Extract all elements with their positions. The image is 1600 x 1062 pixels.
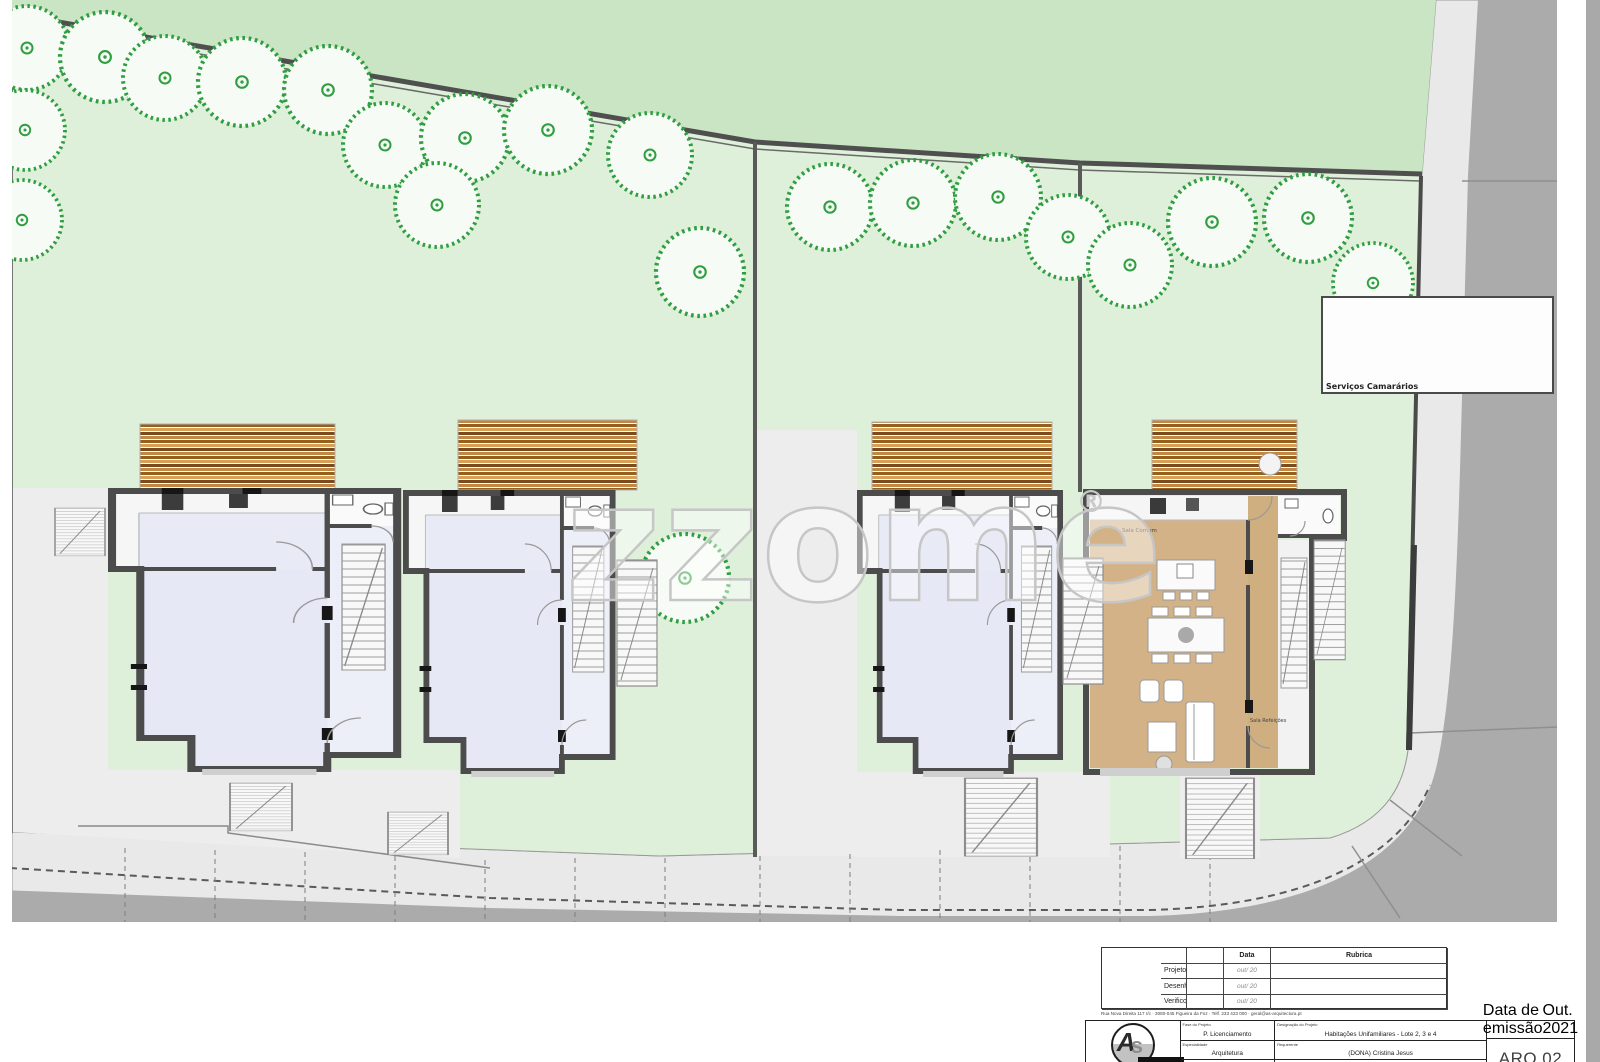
tree-icon bbox=[656, 228, 744, 316]
watermark-text: zzome bbox=[565, 447, 1164, 639]
row-verificou-label: Verificou: bbox=[1161, 995, 1187, 1011]
especialidade-value: Arquitetura bbox=[1212, 1050, 1243, 1059]
tree-icon bbox=[608, 113, 692, 197]
sheet-number-column: Data de emissão Out. 2021 ARQ.02 bbox=[1487, 1021, 1574, 1062]
logo-bar bbox=[1138, 1057, 1184, 1062]
col-data-header: Data bbox=[1224, 948, 1271, 964]
tree-icon bbox=[787, 164, 873, 250]
tree-icon bbox=[395, 163, 479, 247]
titleblock-main: A s Fase do Projeto P. Licenciamento Esp… bbox=[1085, 1020, 1575, 1062]
tree-icon bbox=[123, 36, 207, 120]
project-description-column: Designação do Projeto Habitações Unifami… bbox=[1275, 1021, 1487, 1062]
right-margin bbox=[1557, 0, 1586, 1062]
row-desenhou-label: Desenhou: bbox=[1161, 979, 1187, 995]
row-desenhou-date: out/ 20 bbox=[1224, 979, 1271, 995]
col-rubrica-header: Rubrica bbox=[1271, 948, 1448, 964]
deck-jacuzzi bbox=[1259, 453, 1281, 475]
watermark-registered-icon: ® bbox=[1076, 485, 1106, 520]
office-address-line: Rua Nova Direita 117 r/c · 3080-045 Figu… bbox=[1101, 1011, 1521, 1016]
row-projetou-label: Projetou: bbox=[1161, 964, 1187, 980]
row-projetou-date: out/ 20 bbox=[1224, 964, 1271, 980]
tree-icon bbox=[198, 38, 286, 126]
watermark: zzome ® bbox=[565, 447, 1164, 639]
house-unit-1 bbox=[112, 488, 397, 775]
tree-icon bbox=[870, 160, 956, 246]
fase-value: P. Licenciamento bbox=[1203, 1031, 1251, 1040]
tree-icon bbox=[1264, 174, 1352, 262]
tree-icon bbox=[1088, 223, 1172, 307]
callout-box: Serviços Camarários bbox=[1322, 297, 1553, 393]
tree-icon bbox=[1168, 178, 1256, 266]
project-title: Habitações Unifamiliares - Lote 2, 3 e 4 bbox=[1325, 1031, 1437, 1040]
tree-icon bbox=[504, 86, 592, 174]
deck-house1 bbox=[140, 424, 335, 490]
logo-cell: A s bbox=[1086, 1021, 1181, 1062]
site-plan-drawing: Sala Comum Sala Refeições zzome ® Serviç… bbox=[0, 0, 1600, 1062]
page-edge-strip bbox=[1586, 0, 1600, 1062]
drawing-sheet: Sala Comum Sala Refeições zzome ® Serviç… bbox=[0, 0, 1600, 1062]
callout-label: Serviços Camarários bbox=[1326, 382, 1418, 391]
signature-table: Data Rubrica Projetou: out/ 20 Desenhou:… bbox=[1101, 947, 1447, 1009]
client-name: (DONA) Cristina Jesus bbox=[1348, 1050, 1413, 1059]
row-verificou-date: out/ 20 bbox=[1224, 995, 1271, 1011]
dining-room-label: Sala Refeições bbox=[1250, 718, 1287, 724]
project-meta-column: Fase do Projeto P. Licenciamento Especia… bbox=[1181, 1021, 1276, 1062]
issue-date: Out. 2021 bbox=[1543, 1002, 1579, 1038]
sheet-number: ARQ.02 bbox=[1487, 1039, 1574, 1062]
left-margin bbox=[0, 0, 12, 922]
